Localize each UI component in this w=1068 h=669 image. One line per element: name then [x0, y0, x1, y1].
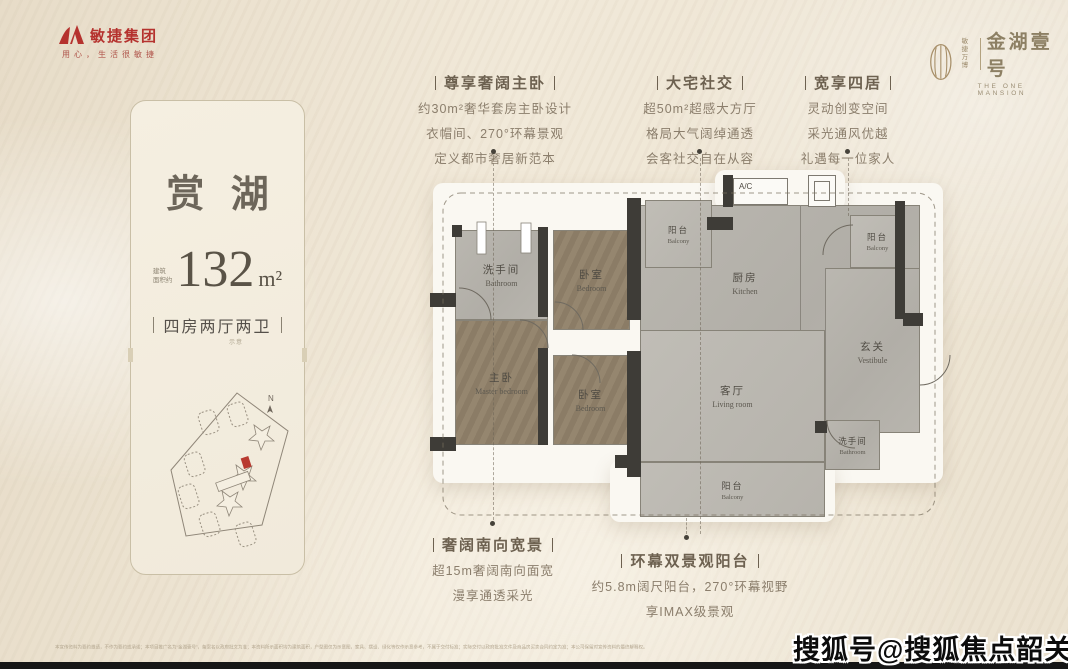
callout-line: 享IMAX级景观: [646, 603, 735, 621]
floorplan: 洗手间 Bathroom 卧室 Bedroom 主卧 Master bedroo…: [415, 165, 970, 537]
callout-title: 环幕双景观阳台: [621, 550, 758, 571]
callout-dot: [697, 149, 702, 154]
floorplan-overlay: [415, 165, 970, 537]
unit-area: 建筑 面积约 132 m²: [131, 244, 304, 296]
unit-info-card: 赏湖 建筑 面积约 132 m² 四房两厅两卫 示意: [130, 100, 305, 575]
callout-line: 灵动创变空间: [807, 100, 888, 118]
unit-area-unit: m²: [258, 266, 282, 292]
callout-title: 宽享四居: [805, 72, 891, 93]
callout-dot: [491, 149, 496, 154]
unit-boundary-dashed: [443, 193, 935, 515]
unit-layout-note: 示意: [229, 337, 243, 346]
callout-connector-line: [493, 158, 494, 520]
callout-title: 尊享奢阔主卧: [435, 72, 555, 93]
unit-area-prefix: 建筑 面积约: [153, 268, 173, 286]
callout-line: 漫享通透采光: [452, 587, 533, 605]
callout-dot: [490, 521, 495, 526]
developer-logo-icon: [58, 24, 85, 46]
callout-line: 约5.8m阔尺阳台，270°环幕视野: [592, 578, 789, 596]
callout-line: 约30m²奢华套房主卧设计: [418, 100, 572, 118]
unit-layout-badge: 四房两厅两卫: [131, 313, 304, 337]
door-arc-icon: [459, 225, 950, 448]
unit-layout-text: 四房两厅两卫: [163, 313, 271, 337]
callout-line: 超15m奢阔南向面宽: [432, 562, 554, 580]
siteplan-diagram: N: [144, 373, 294, 558]
callout-line: 采光通风优越: [807, 125, 888, 143]
developer-name: 敏捷集团: [90, 25, 158, 46]
project-name-en: THE ONE MANSION: [978, 83, 1068, 97]
callout-dot: [684, 535, 689, 540]
watermark-sohu: 搜狐号@搜狐焦点韶关站: [793, 628, 1068, 667]
window-icon: [477, 222, 531, 254]
card-notch-right: [302, 348, 307, 362]
compass-label: N: [268, 394, 274, 403]
unit-area-value: 132: [176, 244, 254, 296]
callout-line: 衣帽间、270°环幕景观: [426, 125, 564, 143]
card-notch-left: [128, 348, 133, 362]
compass-arrow-icon: [267, 405, 273, 413]
developer-logo: 敏捷集团: [58, 24, 158, 46]
callout-connector-line: [700, 158, 701, 534]
area-prefix-line2: 面积约: [153, 277, 173, 286]
callout-line: 格局大气阔绰通透: [646, 125, 754, 143]
siteplan-highlight-unit: [241, 456, 252, 469]
project-name: 金湖壹号: [987, 27, 1068, 81]
callout-master-bedroom: 尊享奢阔主卧 约30m²奢华套房主卧设计 衣帽间、270°环幕景观 定义都市奢居…: [390, 72, 600, 168]
callout-balcony-view: 环幕双景观阳台 约5.8m阔尺阳台，270°环幕视野 享IMAX级景观: [560, 550, 820, 621]
project-prefix: 敏捷 万博: [962, 38, 981, 71]
project-prefix-line2: 万博: [962, 54, 974, 70]
callout-title: 大宅社交: [657, 72, 743, 93]
callout-line: 超50m²超感大方厅: [643, 100, 756, 118]
developer-tagline: 用心，生活很敏捷: [62, 49, 158, 60]
callout-connector-line: [686, 518, 687, 534]
unit-title: 赏湖: [131, 163, 304, 218]
project-prefix-line1: 敏捷: [962, 38, 974, 54]
callout-title: 奢阔南向宽景: [433, 534, 553, 555]
area-prefix-line1: 建筑: [153, 268, 173, 277]
callout-dot: [845, 149, 850, 154]
